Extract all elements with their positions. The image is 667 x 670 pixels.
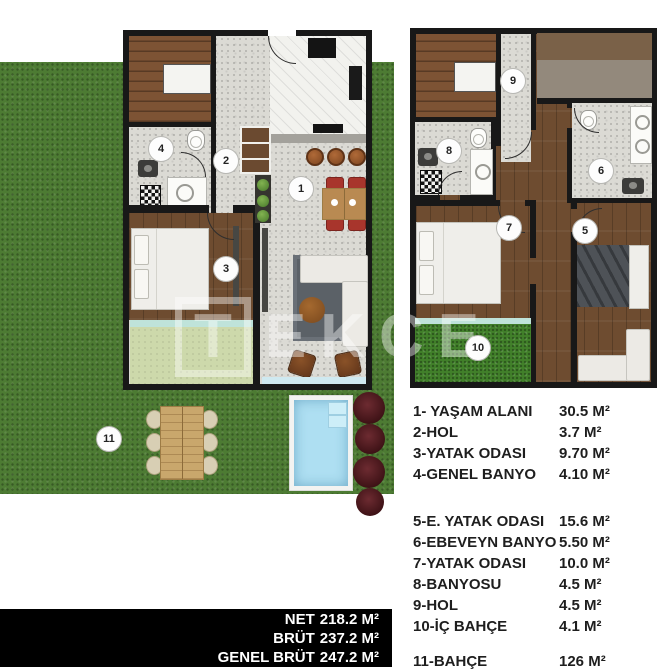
wall xyxy=(415,200,500,206)
duvet-fold xyxy=(156,229,157,309)
fridge xyxy=(308,38,336,58)
legend-label: 10-İÇ BAHÇE xyxy=(413,618,559,635)
wall xyxy=(567,98,572,108)
stairs-landing xyxy=(454,62,496,92)
room-marker-number: 10 xyxy=(472,342,484,354)
window xyxy=(262,377,366,384)
double-bed xyxy=(416,222,501,304)
legend-row: 10-İÇ BAHÇE4.1 M² xyxy=(413,616,665,637)
pool-steps xyxy=(328,415,347,428)
legend-label: 2-HOL xyxy=(413,424,559,441)
plant xyxy=(257,195,269,207)
room-marker-number: 3 xyxy=(223,263,229,275)
wall xyxy=(567,198,652,203)
room-marker: 6 xyxy=(588,158,614,184)
room-marker-number: 8 xyxy=(446,145,452,157)
pouf xyxy=(334,350,362,378)
room-marker: 5 xyxy=(572,218,598,244)
bush xyxy=(356,488,384,516)
legend-label: 9-HOL xyxy=(413,597,559,614)
wardrobe-divider xyxy=(242,142,269,144)
legend-row: 7-YATAK ODASI10.0 M² xyxy=(413,553,665,574)
bathroom-sink xyxy=(138,160,158,177)
drain xyxy=(176,184,194,202)
drain xyxy=(635,115,650,130)
window xyxy=(130,320,253,327)
legend-label: 6-EBEVEYN BANYO xyxy=(413,534,559,551)
wardrobe xyxy=(240,126,271,174)
legend-label: 4-GENEL BANYO xyxy=(413,466,559,483)
oven-column xyxy=(349,66,362,100)
drain xyxy=(635,139,650,154)
terrace xyxy=(130,327,253,384)
double-bed xyxy=(131,228,209,310)
tv-unit xyxy=(262,228,268,312)
legend-value: 15.6 M² xyxy=(559,513,610,530)
legend-value: 10.0 M² xyxy=(559,555,610,572)
legend-row: 1- YAŞAM ALANI30.5 M² xyxy=(413,401,665,422)
room-marker: 2 xyxy=(213,148,239,174)
wall xyxy=(571,203,577,209)
floor-plan-sheet: 1 2 3 4 5 6 7 8 9 10 11 T E K C E 1- YAŞ… xyxy=(0,0,667,670)
bar-stool xyxy=(306,148,324,166)
room-marker-number: 4 xyxy=(158,143,164,155)
double-sink xyxy=(630,106,652,164)
room-marker-number: 11 xyxy=(103,433,115,445)
wall xyxy=(129,122,216,127)
pillow xyxy=(419,231,434,261)
legend-value: 4.10 M² xyxy=(559,466,610,483)
dining-table xyxy=(322,188,366,220)
legend-label: 5-E. YATAK ODASI xyxy=(413,513,559,530)
legend-value: 3.7 M² xyxy=(559,424,602,441)
totals-label: GENEL BRÜT xyxy=(218,649,315,666)
coffee-table xyxy=(299,297,325,323)
room-marker: 9 xyxy=(500,68,526,94)
wall xyxy=(129,205,209,213)
totals-value: 218.2 M² xyxy=(320,611,379,628)
room-marker: 3 xyxy=(213,256,239,282)
pillow xyxy=(419,265,434,295)
legend: 1- YAŞAM ALANI30.5 M² 2-HOL3.7 M² 3-YATA… xyxy=(413,401,665,670)
legend-value: 4.5 M² xyxy=(559,597,602,614)
stairs-landing xyxy=(163,64,211,94)
legend-row: 9-HOL4.5 M² xyxy=(413,595,665,616)
sofa-l-vertical xyxy=(342,281,368,347)
balcony-floor xyxy=(537,60,652,98)
double-bed-dark xyxy=(577,245,629,307)
wall xyxy=(531,34,536,130)
legend-value: 4.1 M² xyxy=(559,618,602,635)
cooktop xyxy=(313,124,343,133)
legend-label: 8-BANYOSU xyxy=(413,576,559,593)
legend-row: 4-GENEL BANYO4.10 M² xyxy=(413,464,665,485)
bathroom-sink xyxy=(418,148,438,166)
totals-label: BRÜT xyxy=(273,630,315,647)
plant xyxy=(257,210,269,222)
bathroom-sink xyxy=(622,178,644,194)
shower xyxy=(470,149,493,195)
legend-row: 6-EBEVEYN BANYO5.50 M² xyxy=(413,532,665,553)
garden-table xyxy=(160,406,204,480)
duvet-fold xyxy=(443,223,444,303)
totals-line: NET218.2 M² xyxy=(280,610,379,629)
toilet xyxy=(470,128,487,148)
plate xyxy=(331,199,338,206)
totals-band: NET218.2 M² BRÜT237.2 M² GENEL BRÜT247.2… xyxy=(0,609,392,667)
legend-value: 5.50 M² xyxy=(559,534,610,551)
totals-line: GENEL BRÜT247.2 M² xyxy=(213,648,379,667)
sofa-l-horizontal xyxy=(300,255,368,283)
bathtub xyxy=(167,177,207,207)
pool-steps xyxy=(328,402,347,415)
pillow xyxy=(134,235,149,265)
legend-label: 1- YAŞAM ALANI xyxy=(413,403,559,420)
pillow xyxy=(134,269,149,299)
plate xyxy=(349,199,356,206)
room-marker: 8 xyxy=(436,138,462,164)
wardrobe-divider xyxy=(242,158,269,160)
legend-value: 30.5 M² xyxy=(559,403,610,420)
room-marker-number: 2 xyxy=(223,155,229,167)
room-marker: 7 xyxy=(496,215,522,241)
totals-label: NET xyxy=(285,611,315,628)
wall xyxy=(567,128,572,203)
bush xyxy=(353,392,385,424)
legend-label: 11-BAHÇE xyxy=(413,653,559,670)
room-marker: 4 xyxy=(148,136,174,162)
room-marker-number: 6 xyxy=(598,165,604,177)
plant xyxy=(257,179,269,191)
floor-plan-upper xyxy=(410,28,657,388)
toilet xyxy=(187,130,205,151)
room-marker: 10 xyxy=(465,335,491,361)
totals-value: 237.2 M² xyxy=(320,630,379,647)
legend-value: 126 M² xyxy=(559,653,606,670)
room-marker-number: 5 xyxy=(582,225,588,237)
legend-label: 7-YATAK ODASI xyxy=(413,555,559,572)
kitchen-counter xyxy=(270,134,366,143)
swimming-pool xyxy=(290,396,352,490)
totals-value: 247.2 M² xyxy=(320,649,379,666)
room-marker-number: 7 xyxy=(506,222,512,234)
wall xyxy=(253,205,260,384)
balcony xyxy=(537,33,652,98)
bush xyxy=(355,424,385,454)
wall xyxy=(530,200,536,258)
totals-line: BRÜT237.2 M² xyxy=(268,629,379,648)
bar-stool xyxy=(327,148,345,166)
legend-label: 3-YATAK ODASI xyxy=(413,445,559,462)
legend-row: 5-E. YATAK ODASI15.6 M² xyxy=(413,511,665,532)
bush xyxy=(353,456,385,488)
legend-row: 2-HOL3.7 M² xyxy=(413,422,665,443)
washing-machine xyxy=(140,185,161,206)
room-marker: 11 xyxy=(96,426,122,452)
legend-value: 4.5 M² xyxy=(559,576,602,593)
sofa-l-vertical xyxy=(626,329,650,381)
balcony-deck xyxy=(537,33,652,60)
room-marker-number: 9 xyxy=(510,75,516,87)
legend-row: 8-BANYOSU4.5 M² xyxy=(413,574,665,595)
legend-value: 9.70 M² xyxy=(559,445,610,462)
legend-row: 3-YATAK ODASI9.70 M² xyxy=(413,443,665,464)
bed-side xyxy=(629,245,649,309)
room-marker: 1 xyxy=(288,176,314,202)
room-marker-number: 1 xyxy=(298,183,304,195)
floor-plan-ground xyxy=(123,30,372,390)
legend-row: 11-BAHÇE126 M² xyxy=(413,651,665,670)
drain xyxy=(475,164,491,180)
bar-stool xyxy=(348,148,366,166)
